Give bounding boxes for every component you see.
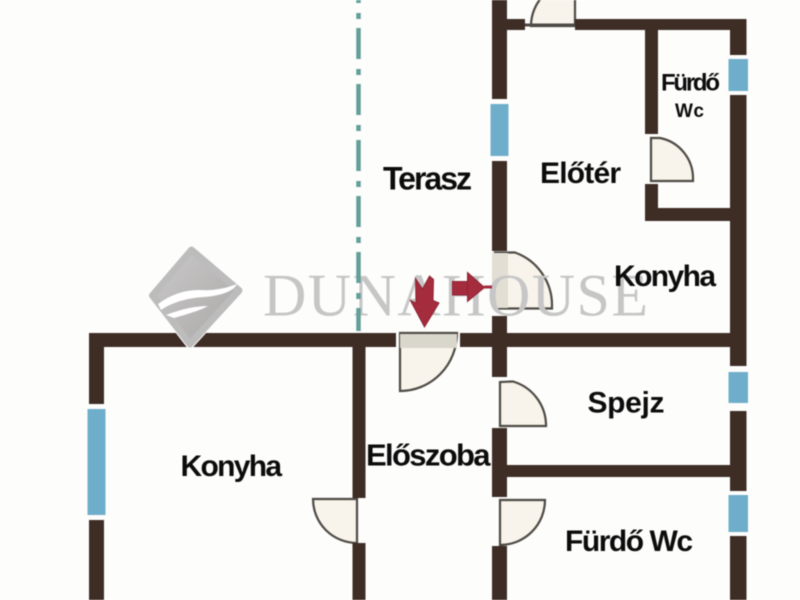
svg-text:Fürdő Wc: Fürdő Wc [565,525,693,558]
svg-text:Terasz: Terasz [383,161,472,197]
svg-text:Előszoba: Előszoba [366,437,491,472]
svg-text:Konyha: Konyha [181,450,283,483]
svg-text:Konyha: Konyha [614,260,716,293]
svg-text:Fürdő: Fürdő [661,70,720,97]
svg-text:Spejz: Spejz [588,387,665,420]
svg-text:Előtér: Előtér [540,157,621,190]
svg-text:Wc: Wc [675,101,704,122]
